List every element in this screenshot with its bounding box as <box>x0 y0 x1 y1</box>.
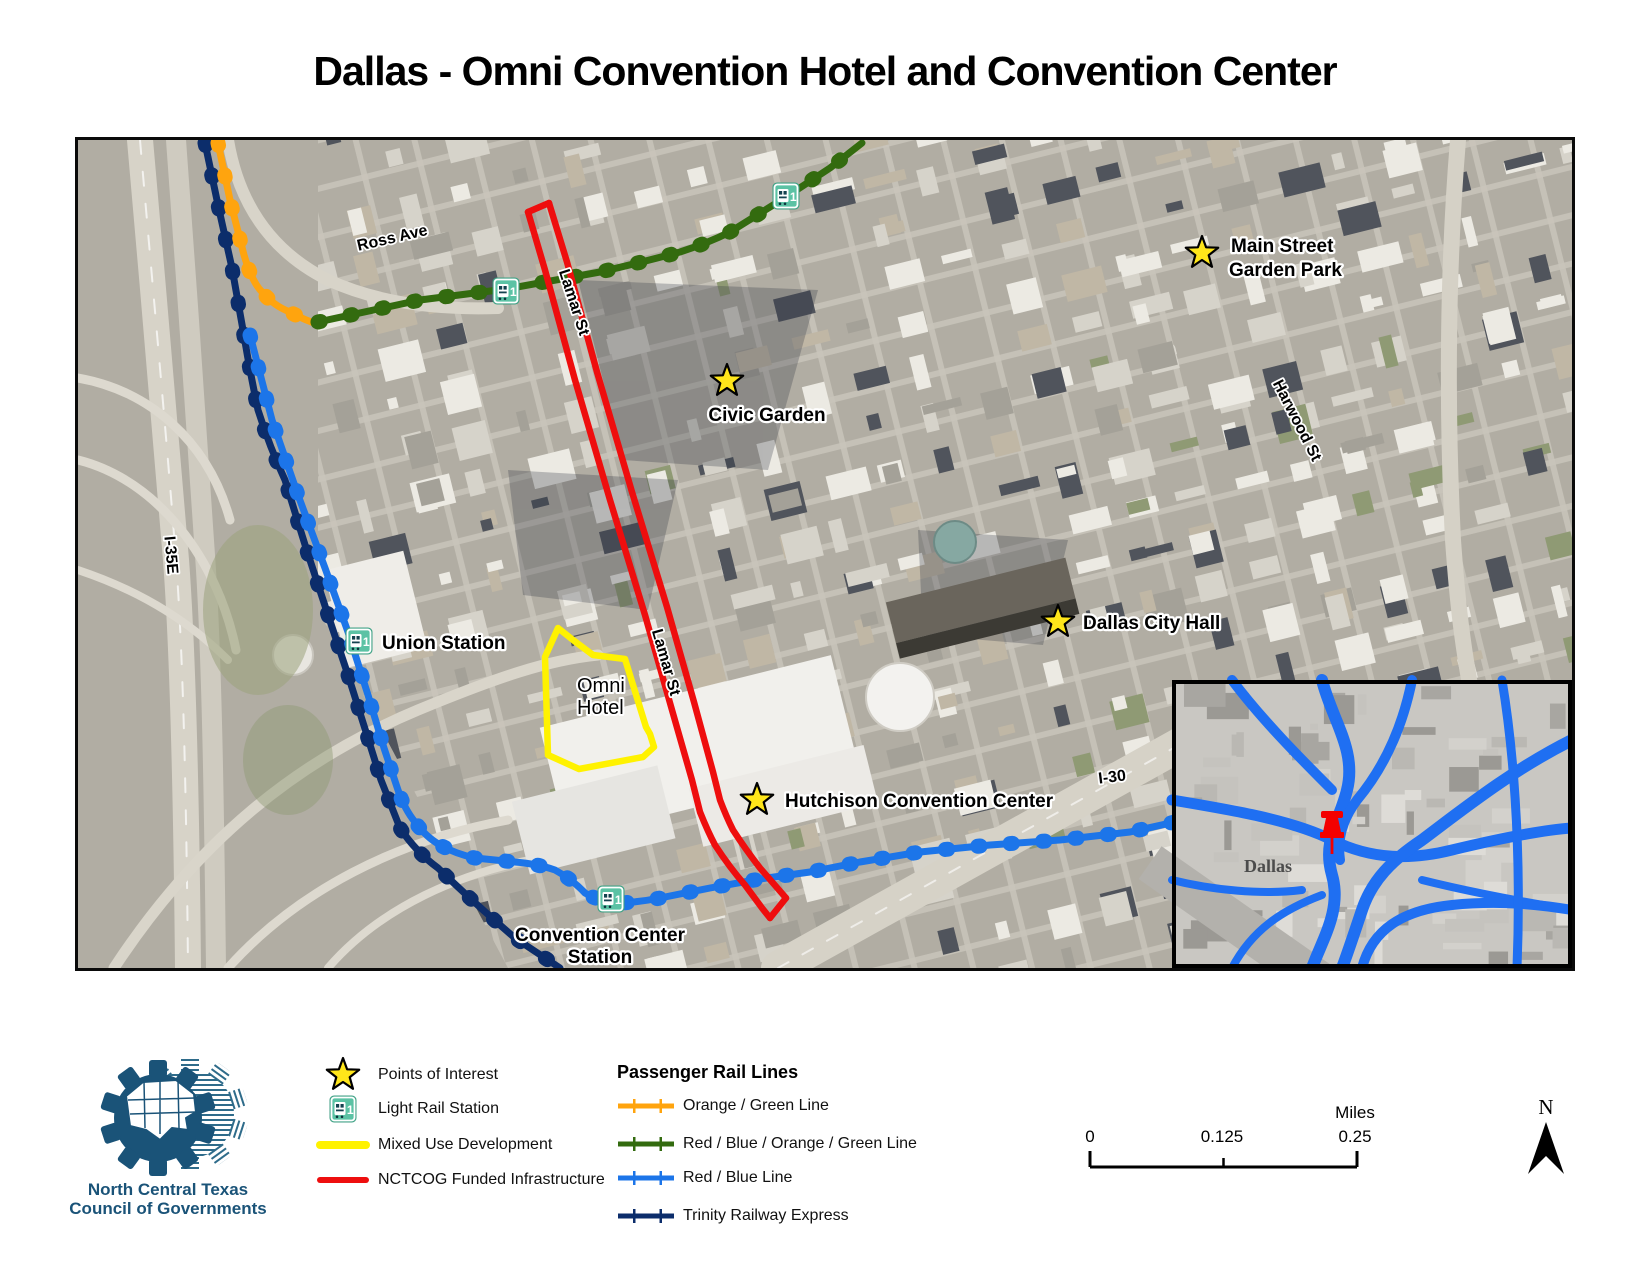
page-title: Dallas - Omni Convention Hotel and Conve… <box>0 48 1650 95</box>
legend-label: Mixed Use Development <box>378 1136 552 1154</box>
legend-label: Orange / Green Line <box>683 1097 829 1115</box>
rail-swatch <box>617 1208 675 1224</box>
rail-swatch <box>617 1170 675 1186</box>
scale-tick-0125: 0.125 <box>1201 1127 1244 1146</box>
legend-label: Red / Blue Line <box>683 1169 792 1187</box>
legend-item-mixed-use-development: Mixed Use Development <box>316 1132 552 1158</box>
label-omni-line1: Omni <box>577 675 625 697</box>
north-label: N <box>1538 1095 1553 1119</box>
rail-swatch <box>617 1098 675 1114</box>
inset-map: Dallas <box>1139 680 1572 968</box>
light-rail-station-icon <box>773 183 799 209</box>
scale-tick-0: 0 <box>1085 1127 1094 1146</box>
legend-item-red-blue-line: Red / Blue Line <box>617 1165 792 1191</box>
legend-label: Light Rail Station <box>378 1100 499 1118</box>
label-omni-line2: Hotel <box>577 697 624 719</box>
mixed-use-swatch <box>316 1138 370 1152</box>
label-convention-center-station-line1: Convention Center <box>515 925 686 946</box>
rail-lines-header: Passenger Rail Lines <box>617 1062 798 1083</box>
label-hutchison-convention-center: Hutchison Convention Center <box>785 791 1054 812</box>
legend-item-points-of-interest: Points of Interest <box>316 1062 498 1088</box>
scale-bar-line <box>1090 1151 1357 1167</box>
nctcog-swatch <box>316 1173 370 1187</box>
legend-label: Trinity Railway Express <box>683 1207 849 1225</box>
north-arrow-icon: N <box>1518 1086 1582 1182</box>
scale-tick-025: 0.25 <box>1338 1127 1371 1146</box>
label-dallas-city-hall: Dallas City Hall <box>1083 613 1220 634</box>
label-convention-center-station-line2: Station <box>568 947 632 968</box>
label-union-station: Union Station <box>382 633 505 654</box>
light-rail-station-icon <box>346 628 372 654</box>
legend-item-red-blue-orange-green-line: Red / Blue / Orange / Green Line <box>617 1131 917 1157</box>
scale-bar: Miles 0 0.125 0.25 <box>1068 1096 1388 1176</box>
label-main-street-garden-park-line2: Garden Park <box>1229 260 1342 281</box>
logo-text-line1: North Central Texas <box>88 1180 248 1199</box>
street-label-i-35e: I-35E <box>160 535 180 575</box>
legend-label: Red / Blue / Orange / Green Line <box>683 1135 917 1153</box>
light-rail-station-icon <box>493 278 519 304</box>
legend-label: Points of Interest <box>378 1066 498 1084</box>
label-civic-garden: Civic Garden <box>708 405 825 426</box>
rail-swatch <box>617 1136 675 1152</box>
legend-label: NCTCOG Funded Infrastructure <box>378 1171 605 1189</box>
street-label-i-30: I-30 <box>1097 767 1127 787</box>
nctcog-logo: North Central Texas Council of Governmen… <box>48 1038 288 1228</box>
aerial-map: 1 <box>75 137 1575 971</box>
legend-item-nctcog-funded-infrastructure: NCTCOG Funded Infrastructure <box>316 1167 605 1193</box>
star-icon <box>321 1053 365 1097</box>
scale-unit-label: Miles <box>1335 1103 1375 1122</box>
light-rail-station-icon <box>598 886 624 912</box>
legend-item-orange-green-line: Orange / Green Line <box>617 1093 829 1119</box>
label-main-street-garden-park-line1: Main Street <box>1231 236 1334 257</box>
legend-item-light-rail-station: Light Rail Station <box>316 1096 499 1122</box>
light-rail-station-icon <box>329 1095 357 1123</box>
logo-text-line2: Council of Governments <box>69 1199 266 1218</box>
inset-city-label: Dallas <box>1244 856 1292 876</box>
legend-item-trinity-railway-express: Trinity Railway Express <box>617 1203 849 1229</box>
